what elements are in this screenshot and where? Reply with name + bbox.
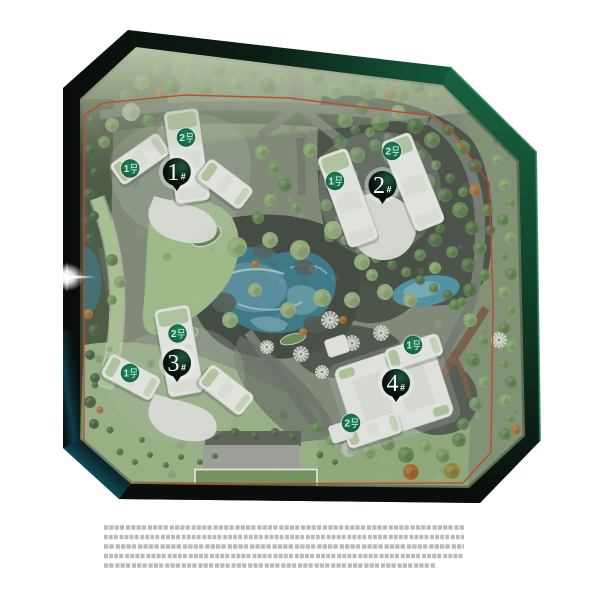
svg-text:1: 1 bbox=[328, 177, 334, 188]
svg-text:2: 2 bbox=[385, 147, 391, 158]
svg-text:1: 1 bbox=[167, 160, 179, 186]
svg-text:3: 3 bbox=[168, 351, 180, 377]
svg-text:2: 2 bbox=[171, 329, 177, 340]
svg-text:1: 1 bbox=[123, 369, 129, 380]
svg-text:2: 2 bbox=[344, 419, 350, 430]
svg-text:#: # bbox=[400, 383, 405, 393]
svg-text:1: 1 bbox=[124, 164, 130, 175]
svg-text:#: # bbox=[386, 185, 391, 195]
svg-text:1: 1 bbox=[406, 341, 412, 352]
svg-text:2: 2 bbox=[373, 173, 385, 199]
svg-text:#: # bbox=[181, 172, 186, 182]
svg-text:#: # bbox=[181, 363, 186, 373]
svg-text:2: 2 bbox=[179, 133, 185, 144]
svg-text:4: 4 bbox=[387, 371, 399, 397]
